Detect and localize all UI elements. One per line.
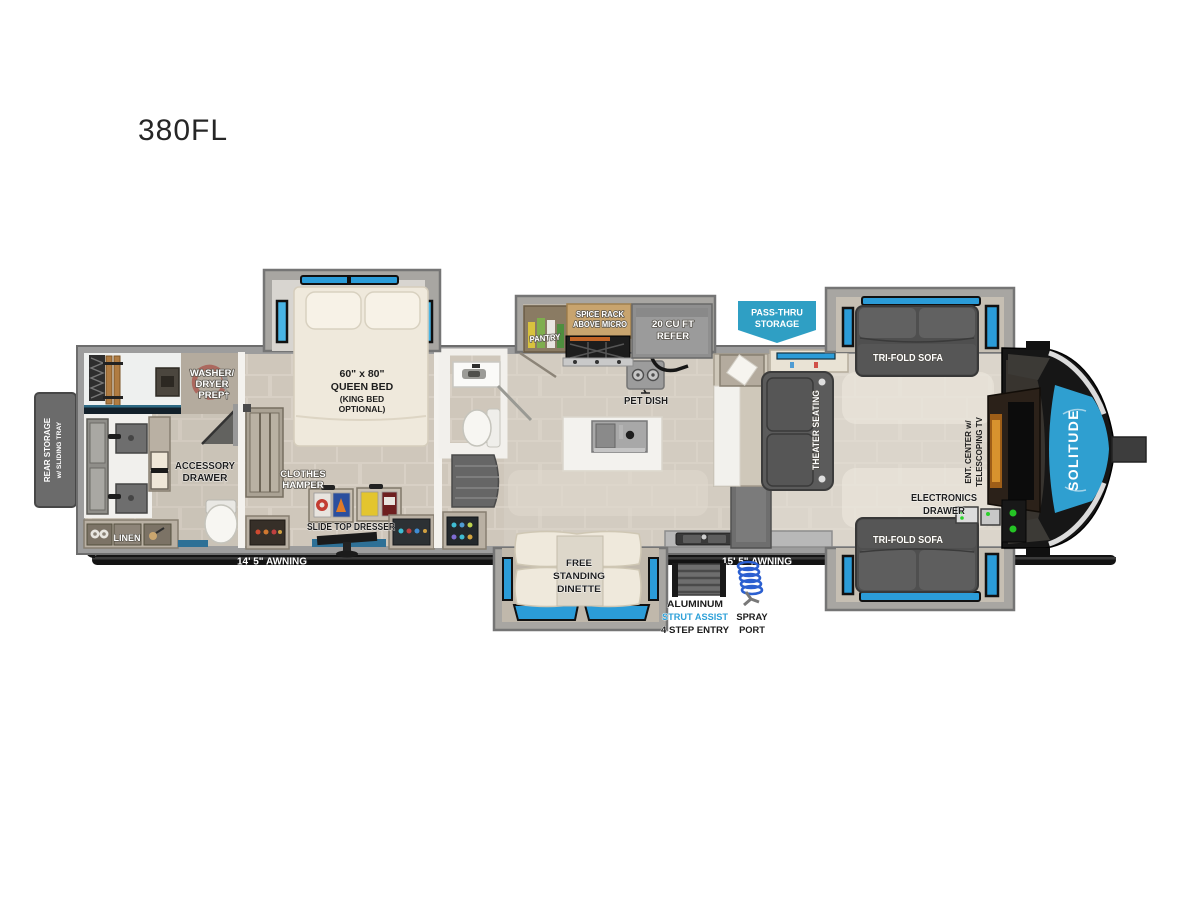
svg-text:REAR STORAGE: REAR STORAGE <box>43 417 52 482</box>
svg-text:HAMPER: HAMPER <box>282 480 323 491</box>
svg-text:WASHER/: WASHER/ <box>190 368 235 379</box>
svg-text:PET DISH: PET DISH <box>624 396 668 407</box>
svg-text:ELECTRONICS: ELECTRONICS <box>911 493 977 504</box>
svg-text:ALUMINUM: ALUMINUM <box>667 599 723 609</box>
svg-text:STANDING: STANDING <box>553 571 605 582</box>
svg-text:THEATER SEATING: THEATER SEATING <box>811 390 822 470</box>
svg-text:SPRAY: SPRAY <box>736 612 768 622</box>
svg-text:(KING BED: (KING BED <box>340 394 384 404</box>
svg-text:QUEEN BED: QUEEN BED <box>331 381 394 393</box>
svg-text:LINEN: LINEN <box>114 533 141 543</box>
svg-text:STRUT ASSIST: STRUT ASSIST <box>662 612 728 622</box>
svg-text:20 CU FT: 20 CU FT <box>652 319 694 330</box>
svg-text:OPTIONAL): OPTIONAL) <box>339 404 386 414</box>
svg-text:60" x 80": 60" x 80" <box>340 368 385 380</box>
svg-text:ACCESSORY: ACCESSORY <box>175 461 235 472</box>
svg-text:SOLITUDE: SOLITUDE <box>1065 409 1081 491</box>
svg-text:4 STEP ENTRY: 4 STEP ENTRY <box>661 625 730 635</box>
svg-text:TELESCOPING TV: TELESCOPING TV <box>975 416 984 486</box>
svg-text:STORAGE: STORAGE <box>755 319 799 329</box>
svg-text:380FL: 380FL <box>138 114 228 147</box>
svg-text:SLIDE TOP DRESSER: SLIDE TOP DRESSER <box>307 522 396 533</box>
svg-text:PASS-THRU: PASS-THRU <box>751 308 803 318</box>
svg-text:PORT: PORT <box>739 625 765 635</box>
svg-text:w/ SLIDING TRAY: w/ SLIDING TRAY <box>56 421 63 479</box>
svg-text:TRI-FOLD SOFA: TRI-FOLD SOFA <box>873 535 943 546</box>
svg-text:CLOTHES: CLOTHES <box>280 469 325 480</box>
svg-text:SPICE RACK: SPICE RACK <box>576 310 624 319</box>
svg-text:14' 5" AWNING: 14' 5" AWNING <box>237 557 307 568</box>
svg-text:TRI-FOLD SOFA: TRI-FOLD SOFA <box>873 353 943 364</box>
svg-text:FREE: FREE <box>566 558 592 569</box>
svg-text:REFER: REFER <box>657 331 689 342</box>
svg-text:ENT. CENTER w/: ENT. CENTER w/ <box>964 420 973 484</box>
svg-text:DRAWER: DRAWER <box>183 473 229 484</box>
svg-text:ABOVE MICRO: ABOVE MICRO <box>573 320 627 329</box>
svg-text:PREP†: PREP† <box>198 390 229 401</box>
svg-text:DRAWER: DRAWER <box>923 506 966 517</box>
svg-text:DRYER: DRYER <box>196 379 229 390</box>
svg-text:DINETTE: DINETTE <box>557 584 601 595</box>
